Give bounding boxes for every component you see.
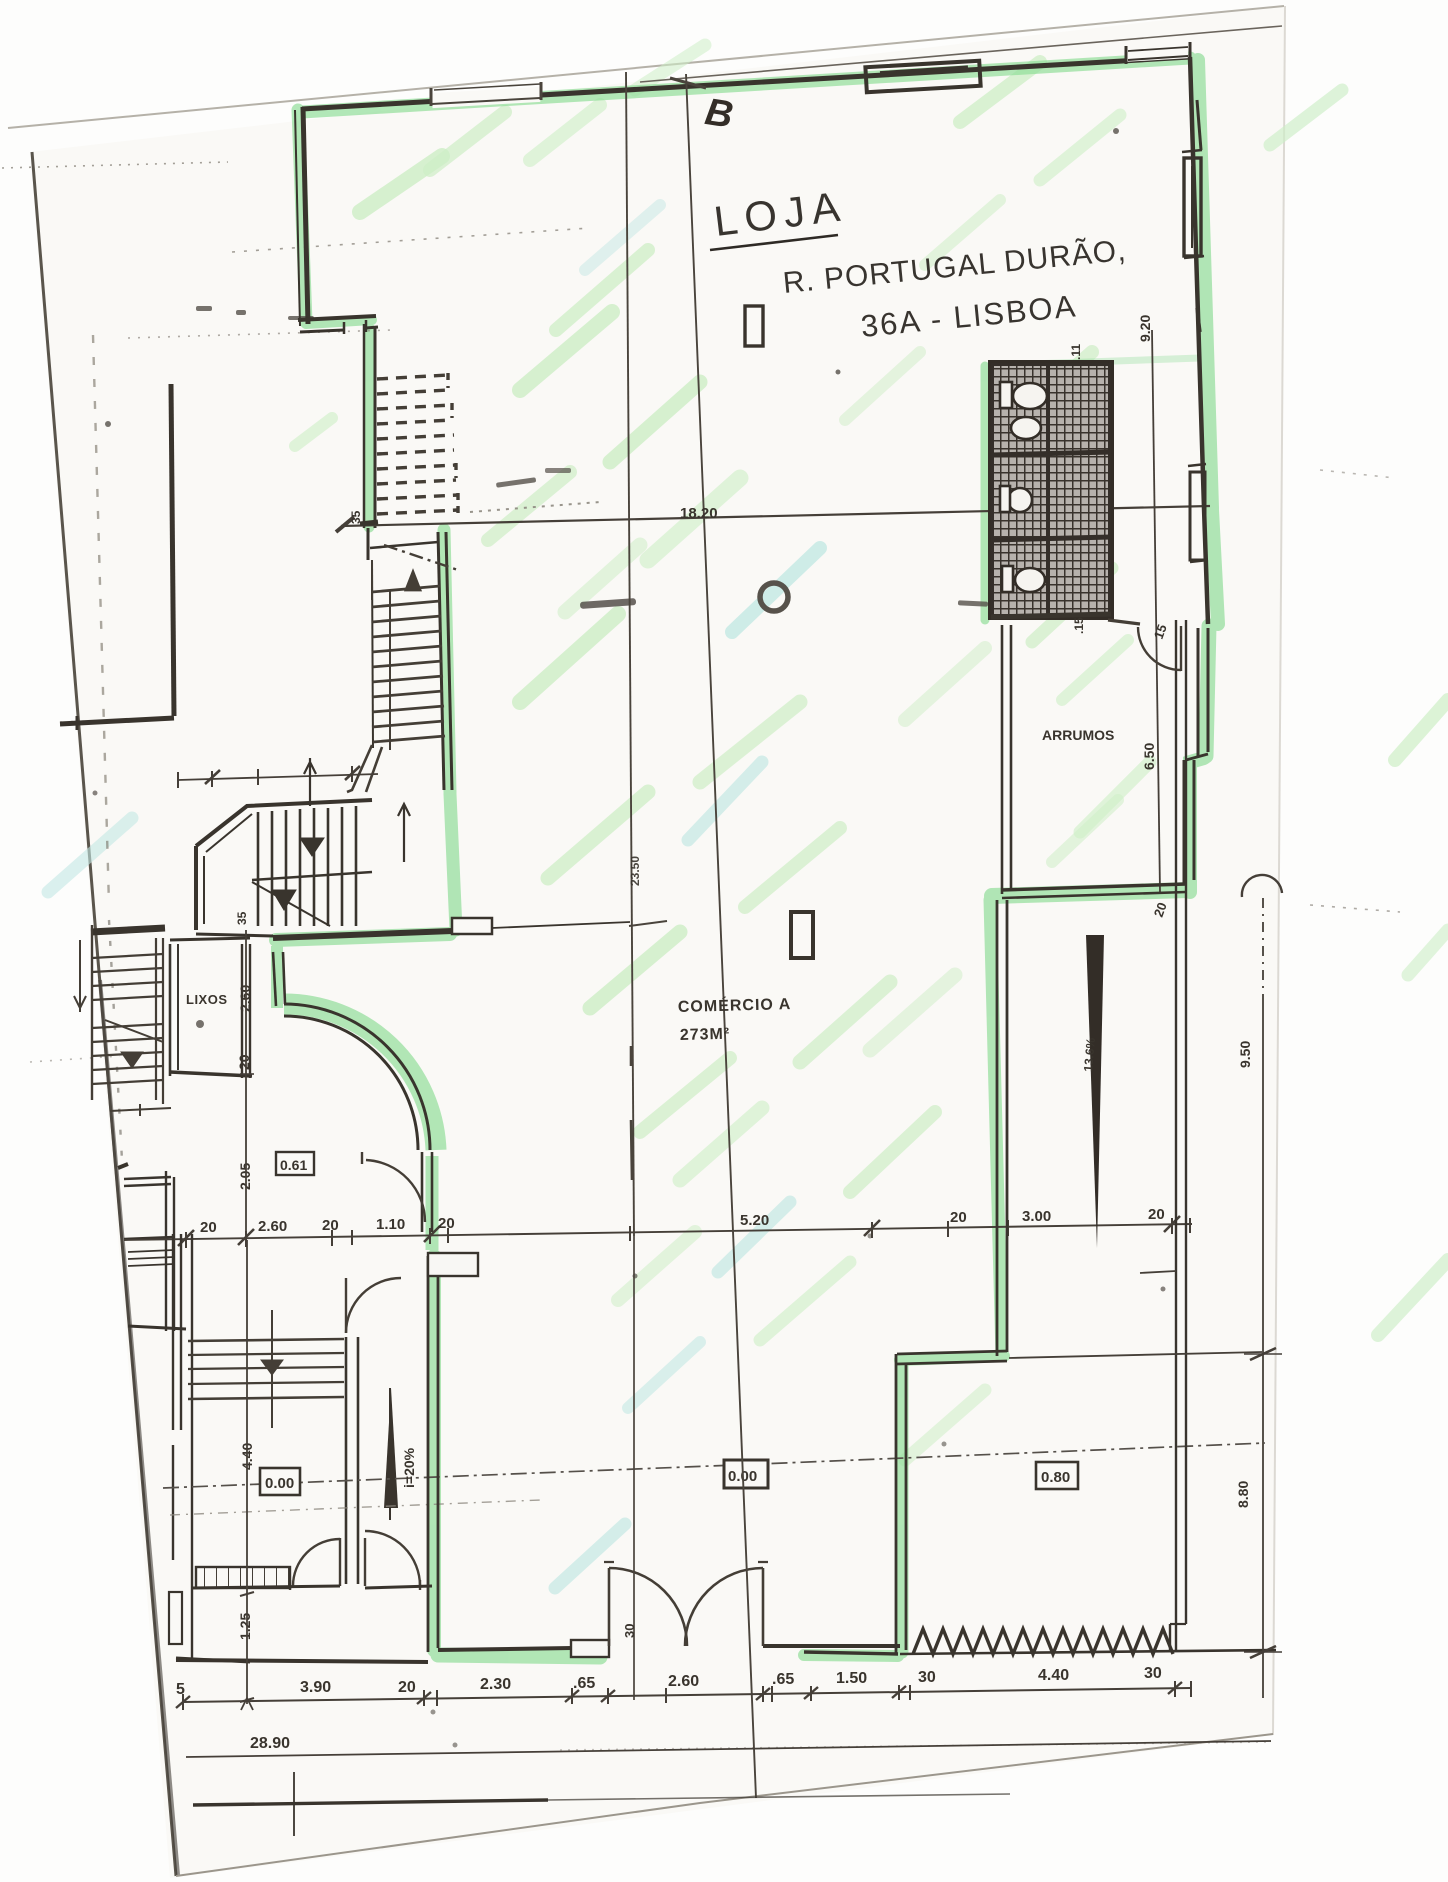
svg-text:30: 30 bbox=[622, 1624, 637, 1638]
svg-text:2.60: 2.60 bbox=[237, 985, 253, 1012]
svg-text:20: 20 bbox=[236, 1054, 252, 1070]
svg-text:35: 35 bbox=[349, 510, 363, 524]
svg-text:3.00: 3.00 bbox=[1022, 1208, 1051, 1225]
svg-text:2.30: 2.30 bbox=[480, 1676, 511, 1693]
svg-text:.15: .15 bbox=[1072, 617, 1086, 634]
svg-text:1.10: 1.10 bbox=[376, 1216, 405, 1233]
svg-text:20: 20 bbox=[950, 1209, 967, 1226]
svg-text:23.50: 23.50 bbox=[628, 856, 642, 886]
svg-text:20: 20 bbox=[200, 1219, 217, 1236]
svg-text:20: 20 bbox=[398, 1679, 416, 1696]
svg-text:28.90: 28.90 bbox=[250, 1735, 290, 1752]
svg-text:5: 5 bbox=[176, 1681, 185, 1698]
svg-text:30: 30 bbox=[918, 1669, 936, 1686]
svg-text:.65: .65 bbox=[772, 1671, 794, 1688]
svg-text:2.60: 2.60 bbox=[258, 1218, 287, 1235]
svg-text:ARRUMOS: ARRUMOS bbox=[1042, 727, 1114, 743]
svg-text:8.80: 8.80 bbox=[1235, 1481, 1251, 1508]
svg-text:LIXOS: LIXOS bbox=[186, 992, 228, 1007]
svg-text:30: 30 bbox=[1144, 1665, 1162, 1682]
svg-text:0.00: 0.00 bbox=[265, 1475, 294, 1492]
svg-text:6.50: 6.50 bbox=[1141, 743, 1157, 770]
svg-text:3.90: 3.90 bbox=[300, 1679, 331, 1696]
svg-text:1.50: 1.50 bbox=[836, 1670, 867, 1687]
svg-text:273M²: 273M² bbox=[680, 1026, 731, 1044]
svg-text:0.80: 0.80 bbox=[1041, 1469, 1070, 1486]
svg-text:13.6%: 13.6% bbox=[1081, 1037, 1098, 1072]
svg-text:20: 20 bbox=[438, 1215, 455, 1232]
svg-text:4.40: 4.40 bbox=[1038, 1667, 1069, 1684]
svg-text:i=20%: i=20% bbox=[401, 1447, 417, 1488]
svg-text:2.60: 2.60 bbox=[668, 1673, 699, 1690]
svg-text:.11: .11 bbox=[1069, 344, 1083, 360]
svg-text:18.20: 18.20 bbox=[680, 505, 718, 522]
svg-text:9.20: 9.20 bbox=[1137, 315, 1153, 342]
svg-text:.65: .65 bbox=[573, 1675, 595, 1692]
svg-text:35: 35 bbox=[235, 911, 249, 925]
svg-text:0.61: 0.61 bbox=[280, 1157, 307, 1173]
svg-text:2.05: 2.05 bbox=[237, 1163, 253, 1190]
svg-text:5.20: 5.20 bbox=[740, 1212, 769, 1229]
svg-text:20: 20 bbox=[322, 1217, 339, 1234]
svg-text:20: 20 bbox=[1148, 1206, 1165, 1223]
svg-text:9.50: 9.50 bbox=[1237, 1041, 1253, 1068]
svg-text:1.25: 1.25 bbox=[237, 1613, 253, 1640]
